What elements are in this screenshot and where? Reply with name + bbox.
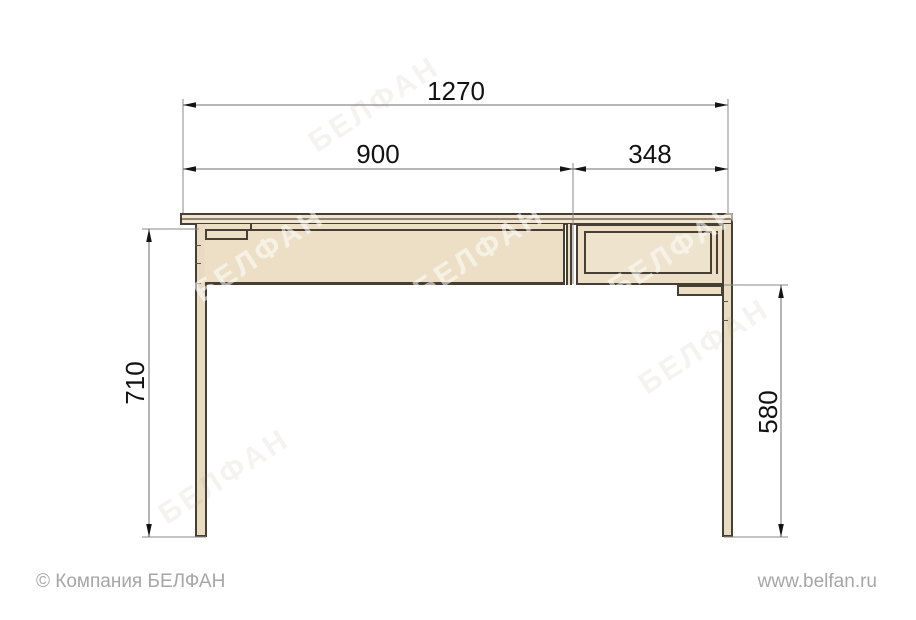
arrowhead	[573, 166, 586, 172]
dimension-overlay: 1270 900 348 710 580	[0, 0, 916, 620]
dim-label-drawer-section-width: 348	[628, 139, 671, 169]
dim-label-leg-height: 710	[120, 361, 150, 404]
dimension-arrows	[146, 102, 784, 537]
arrowhead	[183, 102, 196, 108]
arrowhead	[778, 285, 784, 298]
drawing-canvas: БЕЛФАН БЕЛФАН БЕЛФАН БЕЛФАН БЕЛФАН БЕЛФА…	[0, 0, 916, 620]
footer-copyright: © Компания БЕЛФАН	[36, 571, 225, 593]
arrowhead	[146, 229, 152, 242]
extension-lines	[142, 99, 788, 537]
arrowhead	[715, 102, 728, 108]
dim-label-desk-section-width: 900	[356, 139, 399, 169]
dim-label-under-drawer-height: 580	[753, 390, 783, 433]
arrowhead	[778, 524, 784, 537]
arrowhead	[560, 166, 573, 172]
arrowhead	[146, 524, 152, 537]
dimension-lines	[149, 105, 781, 537]
arrowhead	[715, 166, 728, 172]
arrowhead	[183, 166, 196, 172]
footer-website: www.belfan.ru	[758, 571, 877, 593]
dim-label-overall-width: 1270	[427, 76, 485, 106]
dimension-labels: 1270 900 348 710 580	[120, 76, 783, 434]
